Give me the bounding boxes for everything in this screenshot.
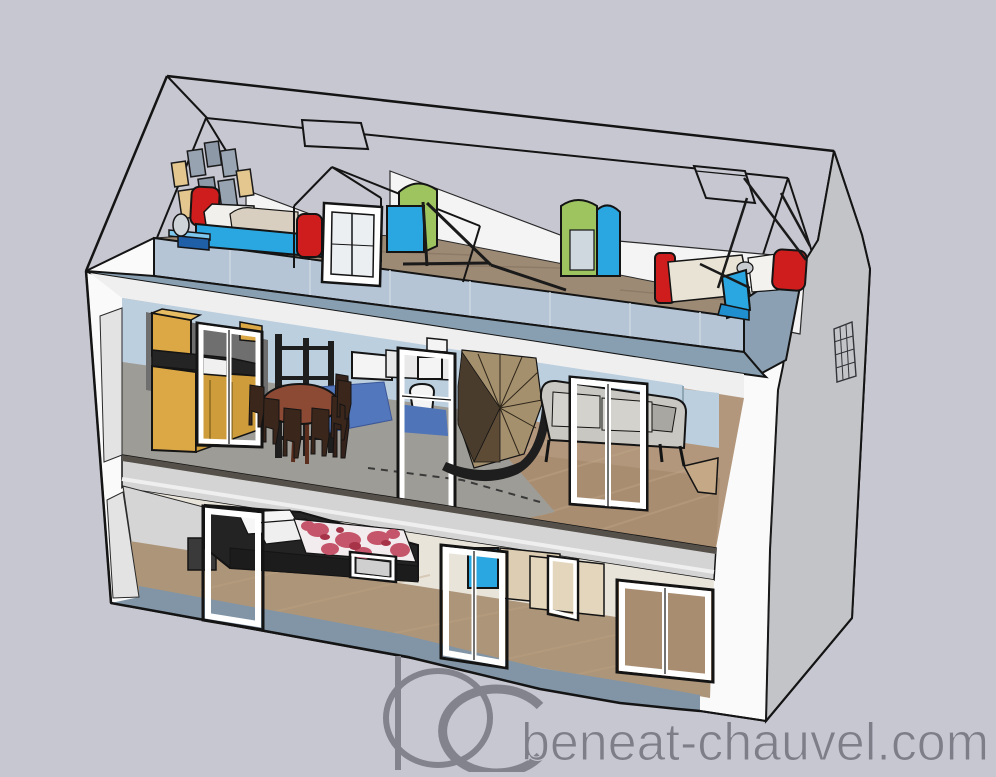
svg-text:beneat-chauvel.com: beneat-chauvel.com <box>521 713 989 772</box>
